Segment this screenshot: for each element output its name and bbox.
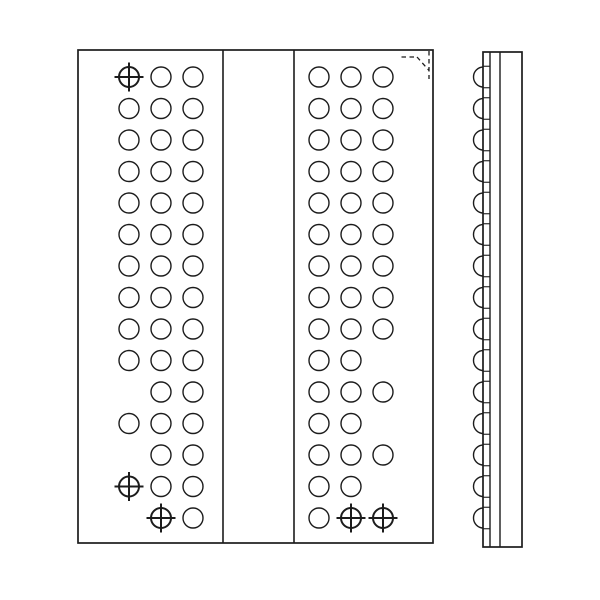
solder-ball: [119, 351, 139, 371]
solder-ball: [151, 414, 171, 434]
solder-ball: [373, 288, 393, 308]
alignment-target-ball: [115, 63, 144, 92]
solder-ball: [183, 67, 203, 87]
solder-ball: [183, 382, 203, 402]
solder-ball: [151, 351, 171, 371]
solder-ball: [183, 508, 203, 528]
solder-ball: [341, 414, 361, 434]
corner-mark-segment: [417, 57, 429, 71]
solder-ball: [373, 382, 393, 402]
solder-ball: [373, 162, 393, 182]
solder-ball: [183, 99, 203, 119]
side-ball-bump: [474, 193, 484, 213]
solder-ball: [309, 288, 329, 308]
a1-corner-mark-icon: [402, 51, 430, 79]
solder-ball: [151, 130, 171, 150]
solder-ball: [373, 445, 393, 465]
solder-ball: [183, 477, 203, 497]
solder-ball: [309, 319, 329, 339]
solder-ball: [119, 193, 139, 213]
solder-ball: [309, 162, 329, 182]
solder-ball: [341, 67, 361, 87]
solder-ball: [119, 414, 139, 434]
bga-package-drawing: [0, 0, 600, 600]
solder-ball: [183, 193, 203, 213]
side-ball-bump: [474, 445, 484, 465]
solder-ball: [119, 162, 139, 182]
solder-ball: [341, 99, 361, 119]
alignment-target-ball: [369, 504, 398, 533]
solder-ball: [119, 99, 139, 119]
alignment-target-ball: [115, 472, 144, 501]
solder-ball: [373, 256, 393, 276]
side-ball-bump: [474, 288, 484, 308]
solder-ball: [341, 162, 361, 182]
solder-ball: [119, 288, 139, 308]
bga-diagram-svg: [0, 0, 600, 600]
side-ball-bump: [474, 382, 484, 402]
solder-ball: [183, 351, 203, 371]
solder-ball: [151, 288, 171, 308]
solder-ball: [309, 130, 329, 150]
side-ball-bump: [474, 414, 484, 434]
solder-ball: [341, 225, 361, 245]
package-front-outline: [78, 50, 433, 543]
solder-ball: [151, 193, 171, 213]
solder-ball: [373, 225, 393, 245]
solder-ball: [341, 193, 361, 213]
solder-ball: [151, 382, 171, 402]
solder-ball: [341, 351, 361, 371]
solder-ball: [309, 414, 329, 434]
solder-ball: [183, 162, 203, 182]
solder-ball: [373, 130, 393, 150]
solder-ball: [309, 445, 329, 465]
solder-ball: [183, 130, 203, 150]
solder-ball: [341, 130, 361, 150]
solder-ball: [151, 477, 171, 497]
solder-ball: [373, 99, 393, 119]
solder-ball: [183, 288, 203, 308]
side-ball-bump: [474, 508, 484, 528]
solder-ball: [309, 67, 329, 87]
solder-ball: [183, 445, 203, 465]
solder-ball: [341, 256, 361, 276]
solder-ball: [151, 99, 171, 119]
side-ball-bump: [474, 477, 484, 497]
side-ball-bump: [474, 319, 484, 339]
package-side-outline: [483, 52, 522, 547]
solder-ball: [341, 445, 361, 465]
solder-ball: [309, 193, 329, 213]
side-ball-bump: [474, 256, 484, 276]
solder-ball: [119, 225, 139, 245]
solder-ball: [341, 319, 361, 339]
solder-ball: [341, 288, 361, 308]
solder-ball: [309, 508, 329, 528]
solder-ball: [151, 319, 171, 339]
solder-ball: [151, 225, 171, 245]
solder-ball: [309, 477, 329, 497]
solder-ball: [373, 67, 393, 87]
side-ball-bump: [474, 351, 484, 371]
solder-ball: [151, 67, 171, 87]
solder-ball: [341, 382, 361, 402]
solder-ball: [309, 351, 329, 371]
solder-ball: [119, 130, 139, 150]
solder-ball: [119, 319, 139, 339]
solder-ball: [151, 445, 171, 465]
side-ball-bump: [474, 225, 484, 245]
side-ball-bump: [474, 99, 484, 119]
solder-ball: [183, 414, 203, 434]
solder-ball: [309, 256, 329, 276]
side-ball-bump: [474, 162, 484, 182]
solder-ball: [183, 225, 203, 245]
solder-ball: [183, 319, 203, 339]
solder-ball: [373, 319, 393, 339]
solder-ball: [309, 99, 329, 119]
solder-ball: [341, 477, 361, 497]
solder-ball: [373, 193, 393, 213]
alignment-target-ball: [337, 504, 366, 533]
solder-ball: [183, 256, 203, 276]
side-ball-bump: [474, 130, 484, 150]
solder-ball: [119, 256, 139, 276]
solder-ball: [309, 225, 329, 245]
solder-ball: [309, 382, 329, 402]
solder-ball: [151, 162, 171, 182]
solder-ball: [151, 256, 171, 276]
side-ball-bump: [474, 67, 484, 87]
alignment-target-ball: [147, 504, 176, 533]
